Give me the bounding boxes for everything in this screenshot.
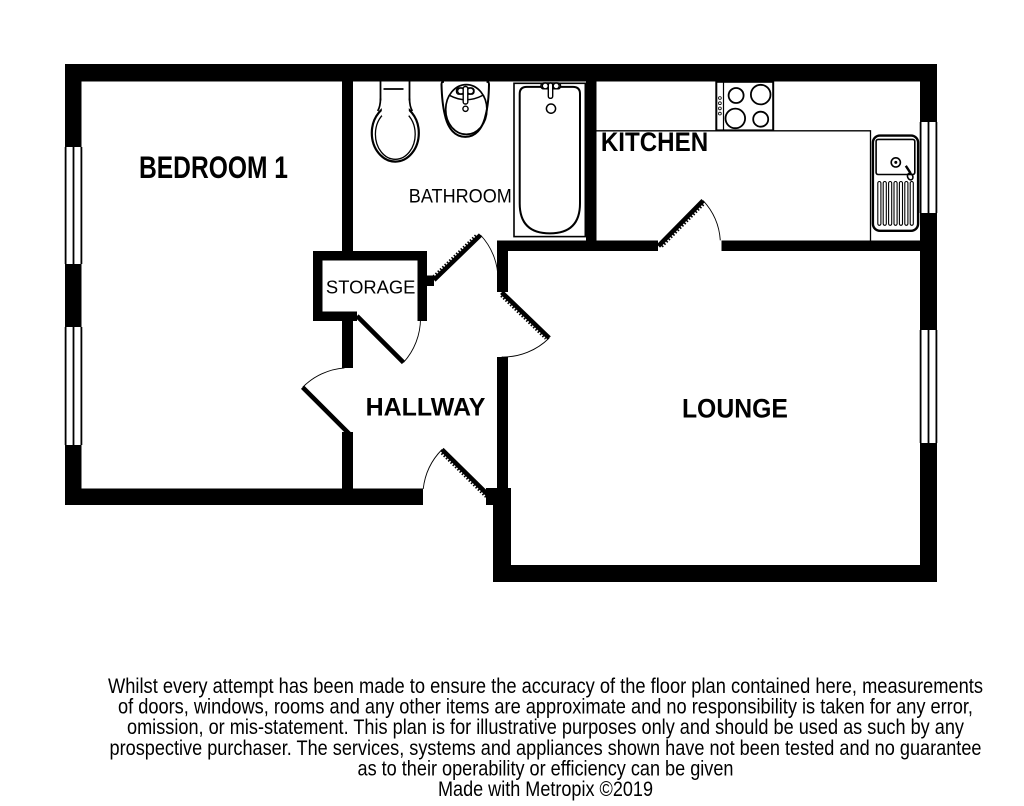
svg-text:HALLWAY: HALLWAY: [366, 394, 486, 421]
svg-text:KITCHEN: KITCHEN: [601, 127, 708, 157]
svg-text:BEDROOM 1: BEDROOM 1: [139, 150, 288, 185]
svg-text:BATHROOM: BATHROOM: [409, 185, 512, 207]
svg-text:STORAGE: STORAGE: [326, 277, 416, 297]
svg-text:Made with Metropix ©2019: Made with Metropix ©2019: [438, 777, 653, 801]
svg-text:LOUNGE: LOUNGE: [682, 393, 788, 423]
